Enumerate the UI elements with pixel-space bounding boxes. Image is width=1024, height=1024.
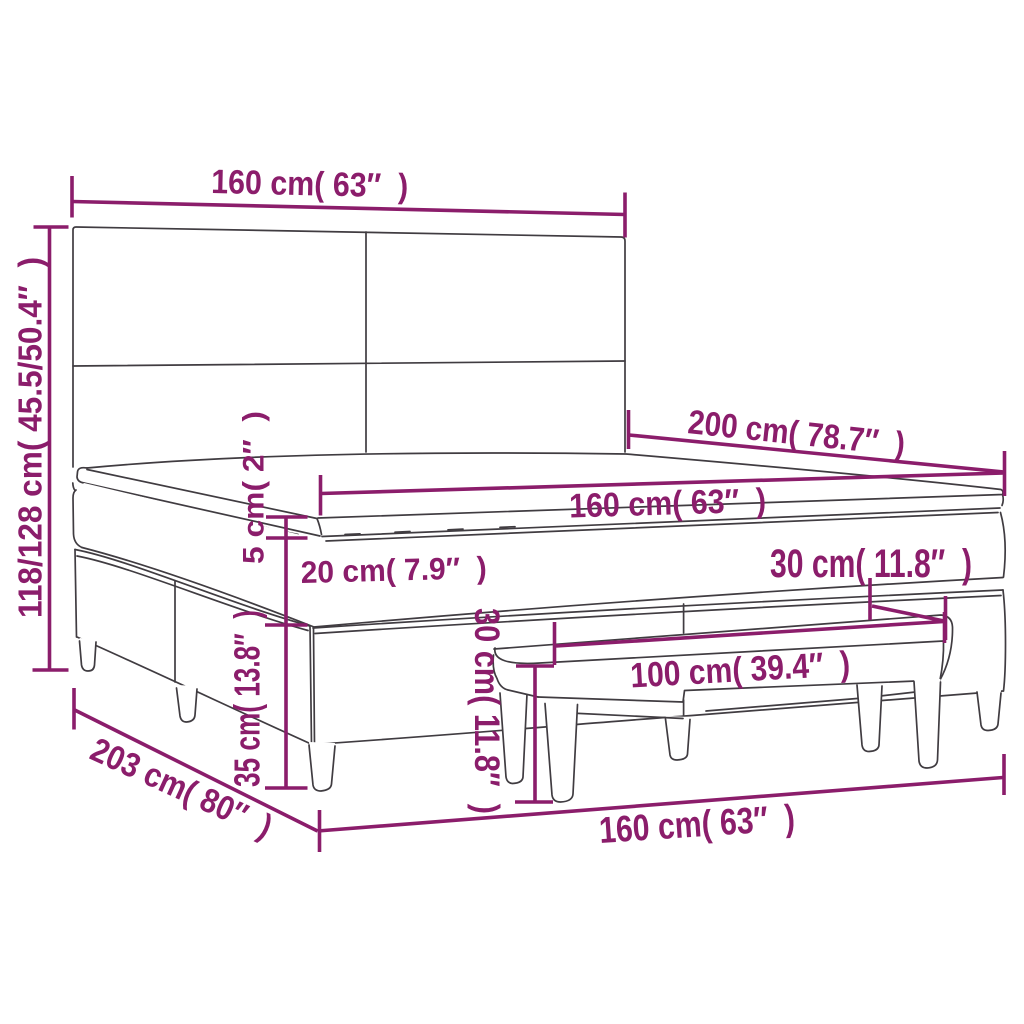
svg-text:5 cm( 2″ ): 5 cm( 2″ ) [238,411,271,564]
svg-text:160 cm( 63″ ): 160 cm( 63″ ) [211,163,409,205]
svg-text:30 cm( 11.8″ ): 30 cm( 11.8″ ) [770,542,972,586]
svg-text:118/128 cm( 45.5/50.4″ ): 118/128 cm( 45.5/50.4″ ) [12,257,49,618]
svg-text:20 cm( 7.9″ ): 20 cm( 7.9″ ) [300,550,487,590]
svg-text:30 cm( 11.8″ ): 30 cm( 11.8″ ) [467,608,506,814]
svg-text:160 cm( 63″ ): 160 cm( 63″ ) [569,482,767,526]
svg-text:35 cm( 13.8″ ): 35 cm( 13.8″ ) [227,610,268,787]
